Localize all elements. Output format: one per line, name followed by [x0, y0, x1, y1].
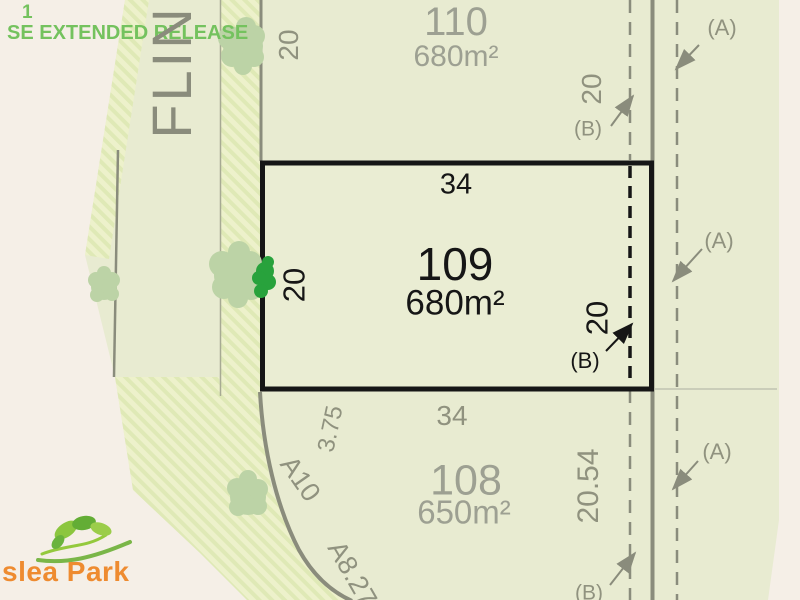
- banner-line-2: SE EXTENDED RELEASE: [7, 23, 248, 43]
- lot-108-north-dim: 34: [436, 402, 467, 430]
- lot-109-north-dim: 34: [440, 171, 472, 200]
- lot-108-area: 650m²: [417, 496, 511, 529]
- logo-text: slea Park: [2, 558, 130, 586]
- easement-ref-b-bottom: (B): [575, 583, 603, 600]
- lot-110-area: 680m²: [413, 42, 498, 72]
- lot-109-area: 680m²: [405, 286, 504, 321]
- easement-ref-a-bottom: (A): [702, 441, 731, 463]
- lot-109-number[interactable]: 109: [417, 241, 494, 287]
- lot-109-east-dim: 20: [582, 301, 613, 335]
- lot-110-east-dim: 20: [578, 73, 606, 104]
- site-plan-svg: [0, 0, 800, 600]
- easement-ref-a-top: (A): [707, 17, 736, 39]
- easement-ref-a-mid: (A): [704, 230, 733, 252]
- easement-ref-b-top: (B): [574, 119, 602, 140]
- lot-108-east-dim: 20.54: [574, 448, 604, 523]
- banner-line-1: 1: [22, 3, 33, 22]
- easement-ref-b-mid: (B): [570, 350, 599, 372]
- lot-109-west-dim: 20: [279, 268, 310, 302]
- subdivision-plan: 1 SE EXTENDED RELEASE FLIN 20 110 680m² …: [0, 0, 800, 600]
- lot-110-number[interactable]: 110: [424, 2, 488, 42]
- street-name: FLIN: [144, 5, 200, 138]
- lot-110-west-dim: 20: [275, 29, 303, 60]
